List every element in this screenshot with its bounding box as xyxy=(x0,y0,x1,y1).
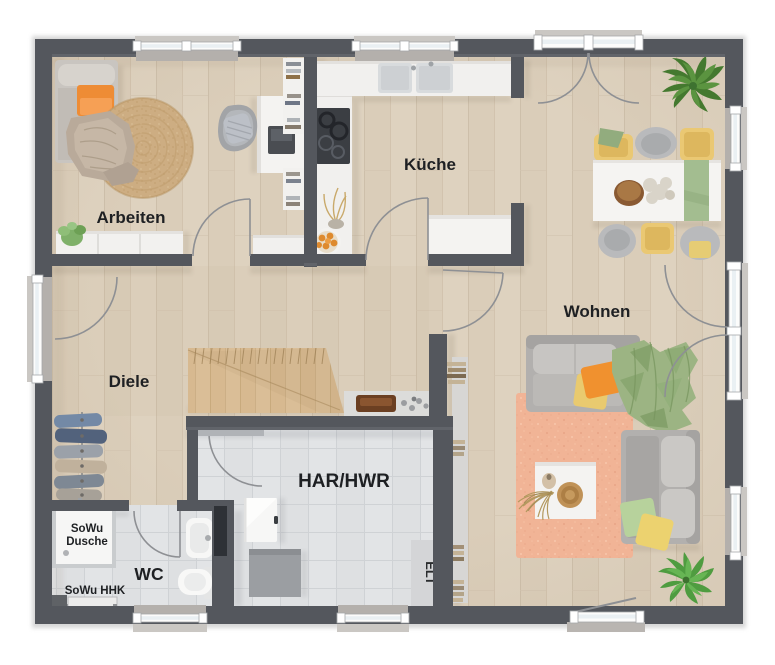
svg-text:Dusche: Dusche xyxy=(66,536,108,548)
svg-text:Diele: Diele xyxy=(109,372,150,391)
svg-text:Arbeiten: Arbeiten xyxy=(97,208,166,227)
svg-text:SoWu HHK: SoWu HHK xyxy=(65,585,126,597)
svg-text:Wohnen: Wohnen xyxy=(564,302,631,321)
svg-text:HAR/HWR: HAR/HWR xyxy=(298,471,390,492)
svg-text:WC: WC xyxy=(134,564,164,584)
svg-text:Küche: Küche xyxy=(404,155,456,174)
svg-text:SoWu: SoWu xyxy=(71,523,103,535)
